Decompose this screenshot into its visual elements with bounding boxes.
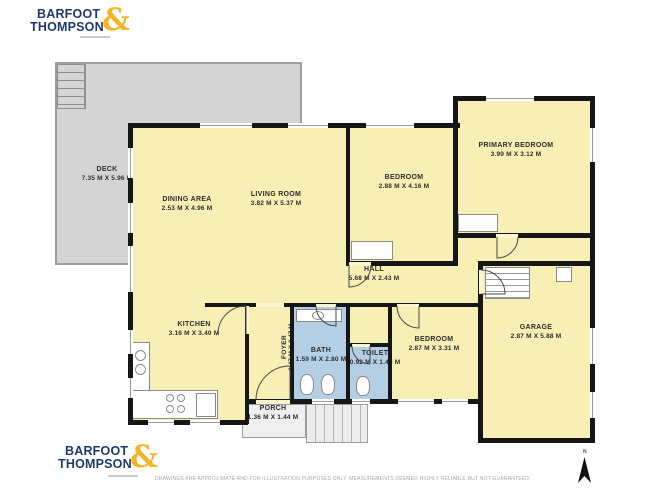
brand-tagline-rule <box>108 475 138 477</box>
door-arc <box>481 270 505 294</box>
brand-logo-top: BARFOOT THOMPSON & <box>30 8 140 44</box>
door-arc <box>352 346 370 364</box>
brand-logo-bottom: BARFOOT THOMPSON & <box>58 445 168 483</box>
door-arc <box>316 306 336 326</box>
door-arc <box>497 237 518 258</box>
door-arcs-layer <box>0 0 658 493</box>
floor-plan: DECK 7.35 M X 5.96 M DINING AREA 2.53 M … <box>0 0 658 493</box>
brand-ampersand: & <box>102 5 130 36</box>
north-label: N <box>583 449 587 455</box>
brand-tagline-rule <box>80 36 110 38</box>
door-arc <box>349 265 371 287</box>
disclaimer-text: DRAWINGS ARE APPROXIMATE AND FOR ILLUSTR… <box>155 476 531 482</box>
door-arc <box>218 306 246 334</box>
north-arrow-icon <box>578 457 591 483</box>
door-arc <box>256 366 290 400</box>
brand-ampersand: & <box>130 442 158 473</box>
door-arc <box>397 306 419 328</box>
